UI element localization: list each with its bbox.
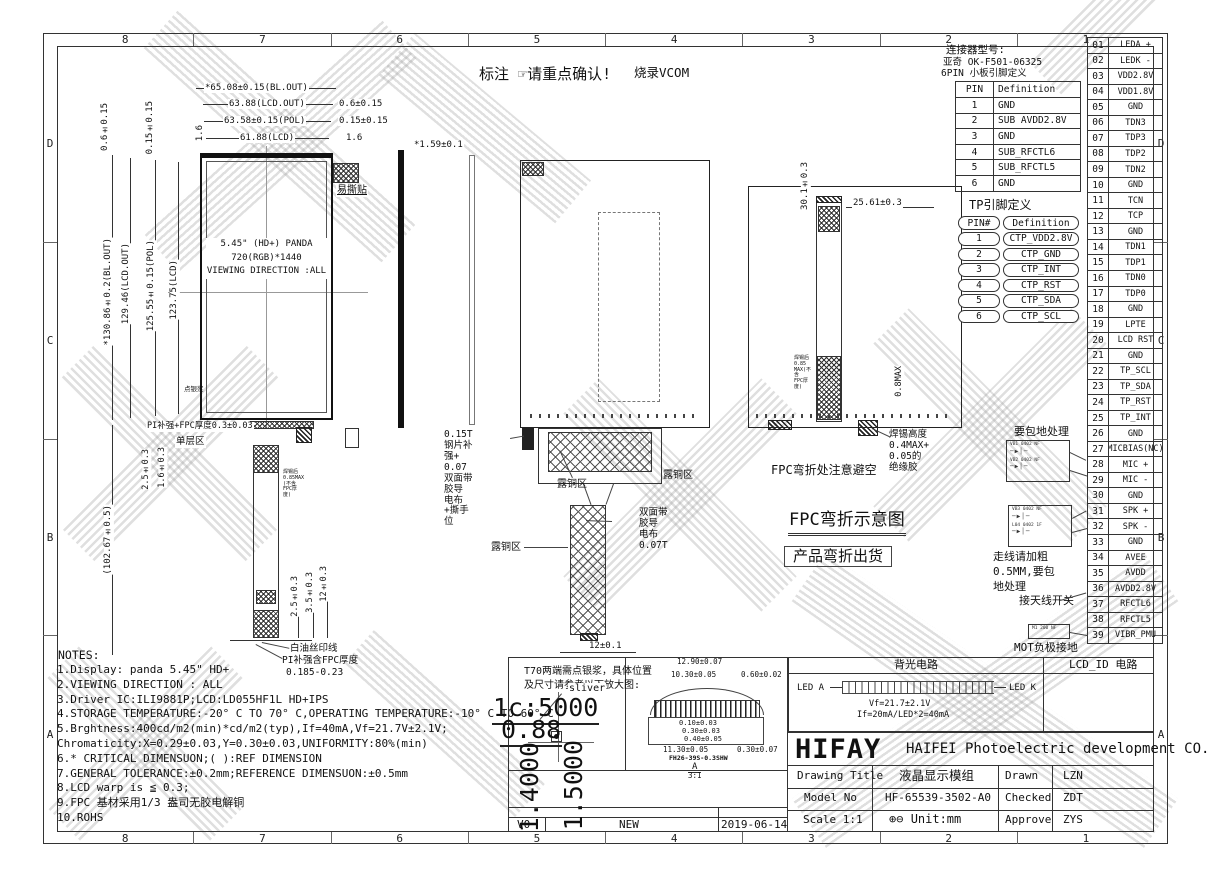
dim-fpc-bottom: 12±0.1 <box>588 641 623 651</box>
pin-row: 24 TP_RST <box>1088 395 1163 411</box>
pin-number: 34 <box>1088 551 1109 567</box>
pin-name: MICBIAS(NC) <box>1109 442 1163 458</box>
tape-note: 双面带胶导 电布0.07T <box>638 508 669 552</box>
pin-number: 06 <box>1088 116 1109 132</box>
model-no-label: Model No <box>803 792 858 805</box>
col-header-pin: PIN# <box>958 216 1000 230</box>
pin-number: 6 <box>958 310 1000 324</box>
dim-pol-w: 63.58±0.15(POL) <box>223 116 306 126</box>
dim-g2: 2.5±0.3 <box>142 449 151 490</box>
pin-name: TDN1 <box>1109 240 1163 256</box>
pin-name: SPK - <box>1109 519 1163 535</box>
pin-number: 28 <box>1088 457 1109 473</box>
pin-number: 32 <box>1088 519 1109 535</box>
pin-row: 18 GND <box>1088 302 1163 318</box>
col-header-def: Definition <box>994 82 1081 98</box>
pin-definition: CTP_INT <box>1003 263 1079 277</box>
dim-left-gap1: 0.6±0.15 <box>101 103 111 151</box>
mic-filter-box: VB1 0402 NF─▶│─ VB2 0402 NF─▶│─ <box>1006 440 1070 482</box>
pin-row: 38 RFCTL5 <box>1088 613 1163 629</box>
pin-row: 37 RFCTL6 <box>1088 597 1163 613</box>
pin-name: TDP0 <box>1109 287 1163 303</box>
pin-row: 26 GND <box>1088 426 1163 442</box>
pin-row: 30 GND <box>1088 488 1163 504</box>
dim-f1: 12±0.3 <box>320 566 329 602</box>
panel-viewing: VIEWING DIRECTION :ALL <box>206 265 327 279</box>
pin-name: MIC - <box>1109 473 1163 489</box>
pin-number: 14 <box>1088 240 1109 256</box>
pin-number: 20 <box>1088 333 1109 349</box>
pin-number: 4 <box>956 145 994 161</box>
dim-bend-1: 30.1±0.3 <box>801 162 811 210</box>
pin-name: VDD1.8V <box>1109 85 1163 101</box>
main-pin-table: 01 LEDA + 02 LEDK - 03 VDD2.8V 04 VDD1.8… <box>1087 37 1163 644</box>
note-line: 2.VIEWING DIRECTION : ALL <box>57 678 554 693</box>
dim-f3: 2.5±0.3 <box>291 576 300 617</box>
diode-symbol-icon: ─▶│─ <box>1010 448 1066 456</box>
pin-number: 5 <box>956 160 994 176</box>
grid-label: C <box>43 242 57 439</box>
note-line: 9.FPC 基材采用1/3 盎司无胶电解铜 <box>57 796 554 811</box>
tp-pin-row: 2 CTP_GND <box>958 248 1082 262</box>
pin-number: 10 <box>1088 178 1109 194</box>
pin-name: TDP1 <box>1109 255 1163 271</box>
panel-resolution: 720(RGB)*1440 <box>206 252 327 266</box>
note-line: 7.GENERAL TOLERANCE:±0.2mm;REFERENCE DIM… <box>57 767 554 782</box>
connector-pin-row: 2 SUB AVDD2.8V <box>956 114 1081 130</box>
pin-name: TCN <box>1109 193 1163 209</box>
bend-avoid-note: FPC弯折处注意避空 <box>770 464 878 478</box>
pin-row: 19 LPTE <box>1088 318 1163 334</box>
pin-name: TDN3 <box>1109 116 1163 132</box>
pin-name: SPK + <box>1109 504 1163 520</box>
dim-lcd-h: 123.75(LCD) <box>170 260 180 320</box>
pin-row: 39 VIBR_PMU <box>1088 628 1163 644</box>
col-header-pin: PIN <box>956 82 994 98</box>
revision-label: V0 <box>516 819 531 832</box>
pin-row: 36 AVDD2.8V <box>1088 582 1163 598</box>
white-silk-label: 白油丝印线 <box>289 644 339 655</box>
pin-number: 4 <box>958 279 1000 293</box>
grid-label: 7 <box>193 832 330 844</box>
dim-f2: 3.5±0.3 <box>306 572 315 613</box>
pi-stiffener-note: PI补强+FPC厚度0.3±0.03 <box>146 422 254 432</box>
dim-g1: 1.6±0.3 <box>158 447 167 488</box>
pin-name: TP_INT <box>1109 411 1163 427</box>
detail-dim-8: 0.30±0.07 <box>736 746 779 755</box>
drawing-title-label: Drawing Title <box>796 770 884 783</box>
detail-dim-6: 0.40±0.05 <box>683 735 723 743</box>
pin-row: 25 TP_INT <box>1088 411 1163 427</box>
pin-row: 14 TDN1 <box>1088 240 1163 256</box>
filter-circuit: VB2 0402 NF─▶│─ <box>1007 457 1069 473</box>
pin-definition: CTP_RST <box>1003 279 1079 293</box>
pin-row: 16 TDN0 <box>1088 271 1163 287</box>
filter-circuit: L04 0402 1F─▶│─ <box>1009 522 1071 538</box>
grid-label: 5 <box>468 832 605 844</box>
pin-number: 17 <box>1088 287 1109 303</box>
pin-row: 29 MIC - <box>1088 473 1163 489</box>
pin-row: 02 LEDK - <box>1088 54 1163 70</box>
note-line: Chromaticity:X=0.29±0.03,Y=0.30±0.03,UNI… <box>57 737 554 752</box>
confirm-text: 请重点确认! <box>527 65 611 83</box>
steel-stiffener-note: 0.15T钢片补强+ 0.07双面带胶导 电布+撕手位 <box>443 430 474 528</box>
pin-row: 03 VDD2.8V <box>1088 69 1163 85</box>
pin-row: 27 MICBIAS(NC) <box>1088 442 1163 458</box>
pin-row: 04 VDD1.8V <box>1088 85 1163 101</box>
pin-number: 15 <box>1088 255 1109 271</box>
grid-label: 8 <box>57 33 193 46</box>
company-logo: HIFAY <box>794 734 882 765</box>
pin-number: 31 <box>1088 504 1109 520</box>
dim-bl-out-h: *130.86±0.2(BL.OUT) <box>104 238 114 346</box>
led-if: If=20mA/LED*2=40mA <box>856 711 950 721</box>
filter-circuit: M1 200 NF <box>1029 625 1069 633</box>
note-line: 6.* CRITICAL DIMENSUON;( ):REF DIMENSION <box>57 752 554 767</box>
pin-name: LPTE <box>1109 318 1163 334</box>
unit-label: Unit:mm <box>911 812 962 826</box>
pin-row: 34 AVEE <box>1088 551 1163 567</box>
pin-name: GND <box>1109 178 1163 194</box>
connector-pin-row: 6 GND <box>956 176 1081 192</box>
pin-number: 27 <box>1088 442 1109 458</box>
part-label: VB2 0402 NF <box>1010 458 1040 463</box>
pin-number: 6 <box>956 176 994 192</box>
single-layer-label: 单层区 <box>175 437 206 448</box>
pin-definition: GND <box>994 129 1081 145</box>
connector-pin-row: 3 GND <box>956 129 1081 145</box>
pin-number: 12 <box>1088 209 1109 225</box>
tp-pin-row: 6 CTP_SCL <box>958 310 1082 324</box>
pin-definition: SUB AVDD2.8V <box>994 114 1081 130</box>
pin-row: 28 MIC + <box>1088 457 1163 473</box>
pin-definition: CTP_SCL <box>1003 310 1079 324</box>
pin-number: 01 <box>1088 38 1109 54</box>
pin-name: GND <box>1109 535 1163 551</box>
unit-cell: ⊕⊖ Unit:mm <box>888 813 962 827</box>
pin-number: 2 <box>958 248 1000 262</box>
grid-label: 6 <box>331 832 468 844</box>
dim-bend-3: 0.8MAX <box>895 366 904 397</box>
part-label: L04 0402 1F <box>1012 523 1042 528</box>
pointing-hand-icon: ☞ <box>518 65 527 83</box>
grid-label: 3 <box>742 832 879 844</box>
grid-labels-left: DCBA <box>43 46 57 832</box>
led-cathode-label: LED K <box>1008 683 1037 693</box>
silver-dot-label: 点银浆 <box>183 386 205 393</box>
pin-name: VIBR_PMU <box>1109 628 1163 644</box>
pin-name: GND <box>1109 224 1163 240</box>
approve-label: Approve <box>1004 814 1052 827</box>
grid-label: 2 <box>880 832 1017 844</box>
checked-value: ZDT <box>1062 792 1084 805</box>
spk-filter-box: VB3 0402 NF─▶│─ L04 0402 1F─▶│─ <box>1008 505 1072 547</box>
bend-title: FPC弯折示意图 <box>788 511 906 536</box>
pin-name: TP_SDA <box>1109 380 1163 396</box>
pin-name: TDN0 <box>1109 271 1163 287</box>
pin-number: 09 <box>1088 162 1109 178</box>
solder-height-note: 焊锡高度0.4MAX+ 0.05的绝缘胶 <box>888 430 930 474</box>
pin-row: 32 SPK - <box>1088 519 1163 535</box>
note-line: 8.LCD warp is ≦ 0.3; <box>57 781 554 796</box>
notes-title: NOTES: <box>57 649 101 662</box>
grid-label: B <box>43 439 57 636</box>
pin-number: 30 <box>1088 488 1109 504</box>
tp-pin-row: 4 CTP_RST <box>958 279 1082 293</box>
pin-name: TP_SCL <box>1109 364 1163 380</box>
lcd-id-title: LCD_ID 电路 <box>1068 659 1138 672</box>
drawing-sheet: 87654321 87654321 DCBA DCBA 标注 ☞请重点确认! 烧… <box>0 0 1211 877</box>
projection-symbol-icon: ⊕⊖ <box>889 812 903 826</box>
grid-label: D <box>43 46 57 242</box>
dim-gap3: 1.6 <box>345 133 363 143</box>
pin-number: 18 <box>1088 302 1109 318</box>
backlight-title: 背光电路 <box>893 659 939 672</box>
pin-name: AVEE <box>1109 551 1163 567</box>
revision-date: 2019-06-14 <box>720 819 788 832</box>
pin-name: MIC + <box>1109 457 1163 473</box>
diode-symbol-icon: ─▶│─ <box>1010 463 1066 471</box>
pin-number: 2 <box>956 114 994 130</box>
pin-number: 26 <box>1088 426 1109 442</box>
dim-gap1: 0.6±0.15 <box>338 99 383 109</box>
lcd-active-area <box>206 161 327 413</box>
pin-number: 5 <box>958 294 1000 308</box>
pin-name: RFCTL6 <box>1109 597 1163 613</box>
pin-name: GND <box>1109 349 1163 365</box>
checked-label: Checked <box>1004 792 1052 805</box>
scale-label: Scale 1:1 <box>802 814 864 827</box>
pin-number: 23 <box>1088 380 1109 396</box>
connector-pin-row: 4 SUB_RFCTL6 <box>956 145 1081 161</box>
company-name: HAIFEI Photoelectric development CO., LT… <box>905 741 1211 757</box>
pin-definition: CTP_GND <box>1003 248 1079 262</box>
pin-definition: GND <box>994 176 1081 192</box>
pin-name: GND <box>1109 488 1163 504</box>
dim-lcd-out-h: 129.46(LCD.OUT) <box>122 243 132 324</box>
tp-table-title: TP引脚定义 <box>968 199 1032 213</box>
pin-number: 04 <box>1088 85 1109 101</box>
connector-pin-row: 5 SUB_RFCTL5 <box>956 160 1081 176</box>
trace-width-note: 走线请加粗 0.5MM,要包 地处理 <box>992 550 1056 595</box>
grid-label: 4 <box>605 832 742 844</box>
pin-row: 21 GND <box>1088 349 1163 365</box>
pin-number: 29 <box>1088 473 1109 489</box>
pin-row: 31 SPK + <box>1088 504 1163 520</box>
pin-definition: SUB_RFCTL6 <box>994 145 1081 161</box>
grid-label: A <box>1154 635 1168 832</box>
dim-bl-out-w: *65.08±0.15(BL.OUT) <box>204 83 309 93</box>
mot-ground-note: MOT负极接地 <box>1013 642 1079 655</box>
pin-number: 24 <box>1088 395 1109 411</box>
dim-pol-h: 125.55±0.15(POL) <box>147 240 157 331</box>
tp-pin-row: 3 CTP_INT <box>958 263 1082 277</box>
drawing-title-value: 液晶显示模组 <box>898 769 975 783</box>
pin-name: TCP <box>1109 209 1163 225</box>
pin-name: LEDA + <box>1109 38 1163 54</box>
part-label: VB1 0402 NF <box>1010 442 1040 447</box>
note-line: 10.ROHS <box>57 811 554 826</box>
pin-number: 38 <box>1088 613 1109 629</box>
grid-label: 8 <box>57 832 193 844</box>
pin-number: 37 <box>1088 597 1109 613</box>
dim-lcd-out-w: 63.88(LCD.OUT) <box>228 99 306 109</box>
drawn-label: Drawn <box>1004 770 1039 783</box>
peel-sticker-label: 易撕贴 <box>336 185 368 197</box>
copper-exposed-label: 露铜区 <box>662 470 694 482</box>
grid-label: 4 <box>605 33 742 46</box>
grid-label: 6 <box>331 33 468 46</box>
pin-name: TDP3 <box>1109 131 1163 147</box>
pin-row: 08 TDP2 <box>1088 147 1163 163</box>
pin-number: 19 <box>1088 318 1109 334</box>
pin-name: LCD RST <box>1109 333 1163 349</box>
panel-size: 5.45" (HD+) PANDA <box>206 238 327 252</box>
pin-name: RFCTL5 <box>1109 613 1163 629</box>
connector-pin-row: 1 GND <box>956 98 1081 114</box>
part-label: M1 200 NF <box>1032 626 1056 631</box>
pin-number: 21 <box>1088 349 1109 365</box>
detail-scale-label: 3:1 <box>687 772 703 781</box>
dim-gap2: 0.15±0.15 <box>338 116 389 126</box>
confirm-note: 标注 ☞请重点确认! <box>478 66 612 83</box>
detail-dim-3: 0.60±0.02 <box>740 671 783 680</box>
filter-circuit: VB1 0402 NF─▶│─ <box>1007 441 1069 457</box>
pin-number: 07 <box>1088 131 1109 147</box>
pin-row: 13 GND <box>1088 224 1163 240</box>
note-line: 3.Driver IC:ILI9881P;LCD:LD055HF1L HD+IP… <box>57 693 554 708</box>
filter-circuit: VB3 0402 NF─▶│─ <box>1009 506 1071 522</box>
grid-label: 7 <box>193 33 330 46</box>
dim-left-gap3: 1.6 <box>196 125 206 141</box>
grid-label: 5 <box>468 33 605 46</box>
pin-row: 09 TDN2 <box>1088 162 1163 178</box>
copper-exposed-label: 露铜区 <box>490 542 522 554</box>
detail-dim-1: 12.90±0.07 <box>676 658 723 667</box>
pin-number: 39 <box>1088 628 1109 644</box>
pin-number: 22 <box>1088 364 1109 380</box>
pin-name: AVDD2.8V <box>1109 582 1163 598</box>
pin-name: GND <box>1109 100 1163 116</box>
dim-lcd-w: 61.88(LCD) <box>239 133 295 143</box>
fpc-strip <box>570 505 606 635</box>
pin-definition: GND <box>994 98 1081 114</box>
connector-subtitle: 6PIN 小板引脚定义 <box>940 69 1028 80</box>
pin-name: VDD2.8V <box>1109 69 1163 85</box>
pin-number: 36 <box>1088 582 1109 598</box>
model-no-value: HF-65539-3502-A0 <box>884 792 992 805</box>
pin-row: 22 TP_SCL <box>1088 364 1163 380</box>
pin-number: 03 <box>1088 69 1109 85</box>
pin-name: TDN2 <box>1109 162 1163 178</box>
pin-row: 12 TCP <box>1088 209 1163 225</box>
pin-row: 35 AVDD <box>1088 566 1163 582</box>
pin-row: 20 LCD RST <box>1088 333 1163 349</box>
tp-pin-table: PIN# Definition 1 CTP_VDD2.8V 2 CTP_GND … <box>958 216 1082 325</box>
pin-definition: SUB_RFCTL5 <box>994 160 1081 176</box>
pin-row: 33 GND <box>1088 535 1163 551</box>
pin-name: LEDK - <box>1109 54 1163 70</box>
pin-row: 23 TP_SDA <box>1088 380 1163 396</box>
approve-value: ZYS <box>1062 814 1084 827</box>
notes-list: 1.Display: panda 5.45" HD+2.VIEWING DIRE… <box>57 663 554 826</box>
confirm-label: 标注 <box>479 65 509 83</box>
drawn-value: LZN <box>1062 770 1084 783</box>
copper-exposed-label: 露铜区 <box>556 479 588 491</box>
pin-number: 02 <box>1088 54 1109 70</box>
pin-number: 3 <box>958 263 1000 277</box>
pin-name: GND <box>1109 426 1163 442</box>
pin-number: 05 <box>1088 100 1109 116</box>
pin-number: 35 <box>1088 566 1109 582</box>
pin-number: 13 <box>1088 224 1109 240</box>
pin-number: 08 <box>1088 147 1109 163</box>
tp-pin-row: 5 CTP_SDA <box>958 294 1082 308</box>
connector-title: 连接器型号: <box>945 44 1006 56</box>
dim-left-gap2: 0.15±0.15 <box>146 101 156 154</box>
part-label: VB3 0402 NF <box>1012 507 1042 512</box>
led-vf: Vf=21.7±2.1V <box>868 700 931 710</box>
pin-number: 33 <box>1088 535 1109 551</box>
grid-label: 1 <box>1017 832 1154 844</box>
pin-number: 25 <box>1088 411 1109 427</box>
revision-status: NEW <box>618 819 640 832</box>
vcom-note: 烧录VCOM <box>633 66 690 80</box>
diode-symbol-icon: ─▶│─ <box>1012 528 1068 536</box>
pin-name: GND <box>1109 302 1163 318</box>
pin-row: 10 GND <box>1088 178 1163 194</box>
solder-small-note: 焊锡后0.85 MAX(不含 FPC厚度) <box>793 356 812 391</box>
pin-row: 06 TDN3 <box>1088 116 1163 132</box>
pin-row: 01 LEDA + <box>1088 38 1163 54</box>
connector-pin-table: PIN Definition 1 GND 2 SUB AVDD2.8V 3 GN… <box>955 81 1081 192</box>
note-line: 4.STORAGE TEMPERATURE:-20° C TO 70° C,OP… <box>57 707 554 722</box>
bend-subtitle: 产品弯折出货 <box>784 546 892 567</box>
pin-row: 11 TCN <box>1088 193 1163 209</box>
pin-number: 11 <box>1088 193 1109 209</box>
pin-number: 1 <box>956 98 994 114</box>
detail-dim-2: 10.30±0.05 <box>670 671 717 680</box>
diode-symbol-icon: ─▶│─ <box>1012 513 1068 521</box>
pin-row: 07 TDP3 <box>1088 131 1163 147</box>
pin-number: 3 <box>956 129 994 145</box>
tp-pin-row: 1 CTP_VDD2.8V <box>958 232 1082 246</box>
detail-dim-5: 0.30±0.03 <box>681 727 721 735</box>
mot-filter-box: M1 200 NF <box>1028 624 1070 639</box>
pin-definition: CTP_SDA <box>1003 294 1079 308</box>
panel-label: 5.45" (HD+) PANDA 720(RGB)*1440 VIEWING … <box>206 238 327 279</box>
note-line: 1.Display: panda 5.45" HD+ <box>57 663 554 678</box>
col-header-def: Definition <box>1003 216 1079 230</box>
pin-row: 17 TDP0 <box>1088 287 1163 303</box>
stamp-4: 1.5000 <box>560 740 588 830</box>
pin-row: 05 GND <box>1088 100 1163 116</box>
grid-labels-bottom: 87654321 <box>57 832 1154 844</box>
dim-thickness: *1.59±0.1 <box>413 140 464 150</box>
peel-sticker <box>333 163 359 183</box>
pin-name: TDP2 <box>1109 147 1163 163</box>
pin-definition: CTP_VDD2.8V <box>1003 232 1079 246</box>
led-chain <box>842 681 994 694</box>
pin-name: TP_RST <box>1109 395 1163 411</box>
grid-label: 3 <box>742 33 879 46</box>
dim-bend-2: 25.61±0.3 <box>852 198 903 208</box>
solder-height-small: 焊锡后0.85MAX (不含FPC厚度) <box>282 470 305 499</box>
pin-row: 15 TDP1 <box>1088 255 1163 271</box>
pin-number: 16 <box>1088 271 1109 287</box>
note-line: 5.Brghtness:400cd/m2(min)*cd/m2(typ),If=… <box>57 722 554 737</box>
detail-dim-4: 0.10±0.03 <box>678 719 718 727</box>
